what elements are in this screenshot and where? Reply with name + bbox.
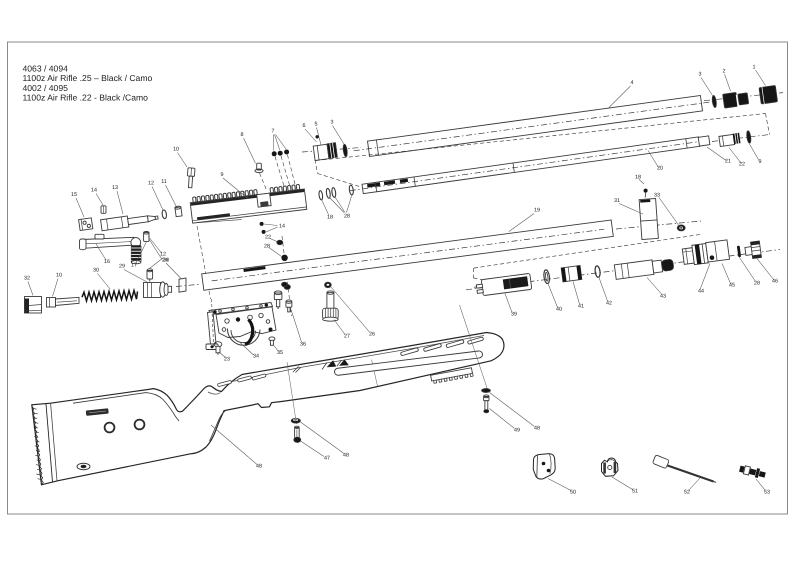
svg-text:9: 9 — [221, 172, 224, 178]
svg-text:31: 31 — [614, 198, 620, 204]
svg-text:43: 43 — [660, 294, 666, 300]
svg-text:22: 22 — [265, 235, 271, 241]
svg-text:51: 51 — [632, 489, 638, 495]
svg-text:26: 26 — [369, 332, 375, 338]
svg-text:4: 4 — [631, 80, 634, 86]
svg-text:20: 20 — [657, 166, 663, 172]
svg-text:23: 23 — [224, 357, 230, 363]
svg-text:18: 18 — [327, 215, 333, 221]
svg-text:2: 2 — [723, 69, 726, 75]
svg-text:47: 47 — [324, 456, 330, 462]
svg-text:48: 48 — [256, 464, 262, 470]
svg-text:5: 5 — [315, 122, 318, 128]
svg-text:15: 15 — [71, 192, 77, 198]
svg-text:50: 50 — [570, 490, 576, 496]
svg-text:18: 18 — [635, 175, 641, 181]
svg-text:28: 28 — [344, 214, 350, 220]
svg-text:28: 28 — [754, 281, 760, 287]
svg-text:16: 16 — [104, 259, 110, 265]
svg-text:41: 41 — [578, 304, 584, 310]
svg-text:4002 / 4095: 4002 / 4095 — [23, 83, 69, 93]
svg-text:6: 6 — [303, 123, 306, 129]
svg-text:13: 13 — [112, 185, 118, 191]
svg-text:36: 36 — [300, 342, 306, 348]
svg-text:1: 1 — [753, 65, 756, 71]
svg-text:45: 45 — [729, 283, 735, 289]
svg-text:9: 9 — [759, 159, 762, 165]
svg-text:11: 11 — [161, 179, 167, 185]
svg-text:30: 30 — [93, 268, 99, 274]
svg-text:42: 42 — [606, 301, 612, 307]
svg-text:40: 40 — [556, 307, 562, 313]
svg-text:46: 46 — [772, 279, 778, 285]
svg-text:1100z Air Rifle .22 - Black /C: 1100z Air Rifle .22 - Black /Camo — [23, 92, 149, 102]
svg-text:19: 19 — [534, 208, 540, 214]
svg-text:48: 48 — [343, 453, 349, 459]
svg-text:44: 44 — [698, 289, 704, 295]
svg-text:34: 34 — [253, 354, 259, 360]
svg-text:39: 39 — [511, 312, 517, 318]
svg-text:52: 52 — [684, 490, 690, 496]
svg-text:3: 3 — [331, 120, 334, 126]
svg-text:14: 14 — [91, 188, 97, 194]
svg-text:48: 48 — [534, 426, 540, 432]
svg-text:28: 28 — [264, 244, 270, 250]
svg-text:3: 3 — [699, 72, 702, 78]
svg-text:1100z Air Rifle .25 – Black /: 1100z Air Rifle .25 – Black / Camo — [23, 73, 153, 83]
svg-text:29: 29 — [119, 264, 125, 270]
svg-text:22: 22 — [739, 162, 745, 168]
svg-text:17: 17 — [131, 263, 137, 269]
svg-text:12: 12 — [148, 181, 154, 187]
svg-text:53: 53 — [764, 490, 770, 496]
svg-text:49: 49 — [514, 428, 520, 434]
svg-text:14: 14 — [279, 224, 285, 230]
svg-text:10: 10 — [56, 273, 62, 279]
svg-text:33: 33 — [654, 193, 660, 199]
svg-text:28: 28 — [163, 258, 169, 264]
svg-text:4063 / 4094: 4063 / 4094 — [23, 64, 69, 74]
svg-text:21: 21 — [725, 159, 731, 165]
svg-text:7: 7 — [272, 129, 275, 135]
svg-text:8: 8 — [241, 132, 244, 138]
svg-text:27: 27 — [344, 334, 350, 340]
svg-text:35: 35 — [277, 350, 283, 356]
svg-text:32: 32 — [24, 276, 30, 282]
svg-text:10: 10 — [173, 147, 179, 153]
